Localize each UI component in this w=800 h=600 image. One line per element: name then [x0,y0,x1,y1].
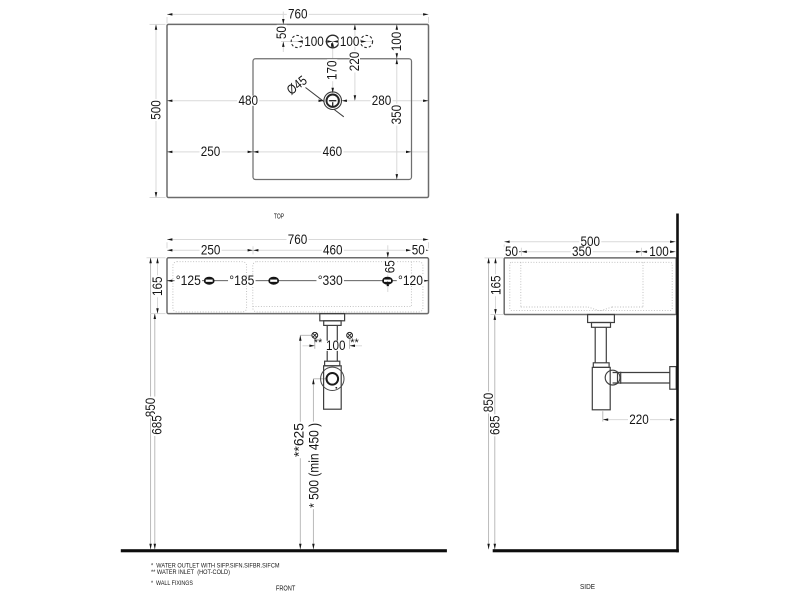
svg-text:SIDE: SIDE [580,582,595,591]
svg-text:50: 50 [505,244,518,259]
svg-text:480: 480 [238,93,258,108]
svg-text:**625: **625 [291,423,306,457]
svg-text:685: 685 [149,415,164,435]
svg-text:760: 760 [288,232,308,247]
svg-text:165: 165 [150,277,165,297]
svg-text:165: 165 [489,276,504,296]
svg-text:°120: °120 [398,273,423,288]
svg-text:350: 350 [389,105,404,125]
svg-text:* WALL FIXINGS: * WALL FIXINGS [151,580,193,587]
svg-text:220: 220 [629,412,649,427]
svg-text:220: 220 [347,52,362,72]
svg-text:50: 50 [412,243,425,258]
svg-text:460: 460 [323,144,343,159]
svg-text:280: 280 [372,93,392,108]
svg-text:°330: °330 [318,273,343,288]
svg-text:°185: °185 [229,273,254,288]
svg-text:**: ** [350,337,359,349]
svg-text:760: 760 [288,7,308,22]
svg-text:100: 100 [389,32,404,52]
svg-text:250: 250 [201,243,221,258]
svg-text:**: ** [314,337,323,349]
svg-text:460: 460 [323,243,343,258]
svg-text:TOP: TOP [274,212,284,221]
svg-text:170: 170 [325,60,340,80]
svg-text:500: 500 [148,100,163,120]
svg-text:100: 100 [304,34,324,49]
svg-text:50: 50 [274,26,289,39]
svg-text:100: 100 [649,244,669,259]
svg-text:100: 100 [326,338,346,353]
svg-text:250: 250 [201,144,221,159]
svg-text:685: 685 [488,416,503,436]
svg-text:350: 350 [572,244,592,259]
svg-text:FRONT: FRONT [276,584,296,593]
svg-text:** WATER INLET (HOT-COLD): ** WATER INLET (HOT-COLD) [151,569,230,576]
svg-text:65: 65 [383,260,398,273]
svg-text:°125: °125 [176,273,201,288]
svg-text:100: 100 [340,34,360,49]
svg-text:850: 850 [481,393,496,413]
svg-text:* 500 (min 450 ): * 500 (min 450 ) [306,423,321,508]
